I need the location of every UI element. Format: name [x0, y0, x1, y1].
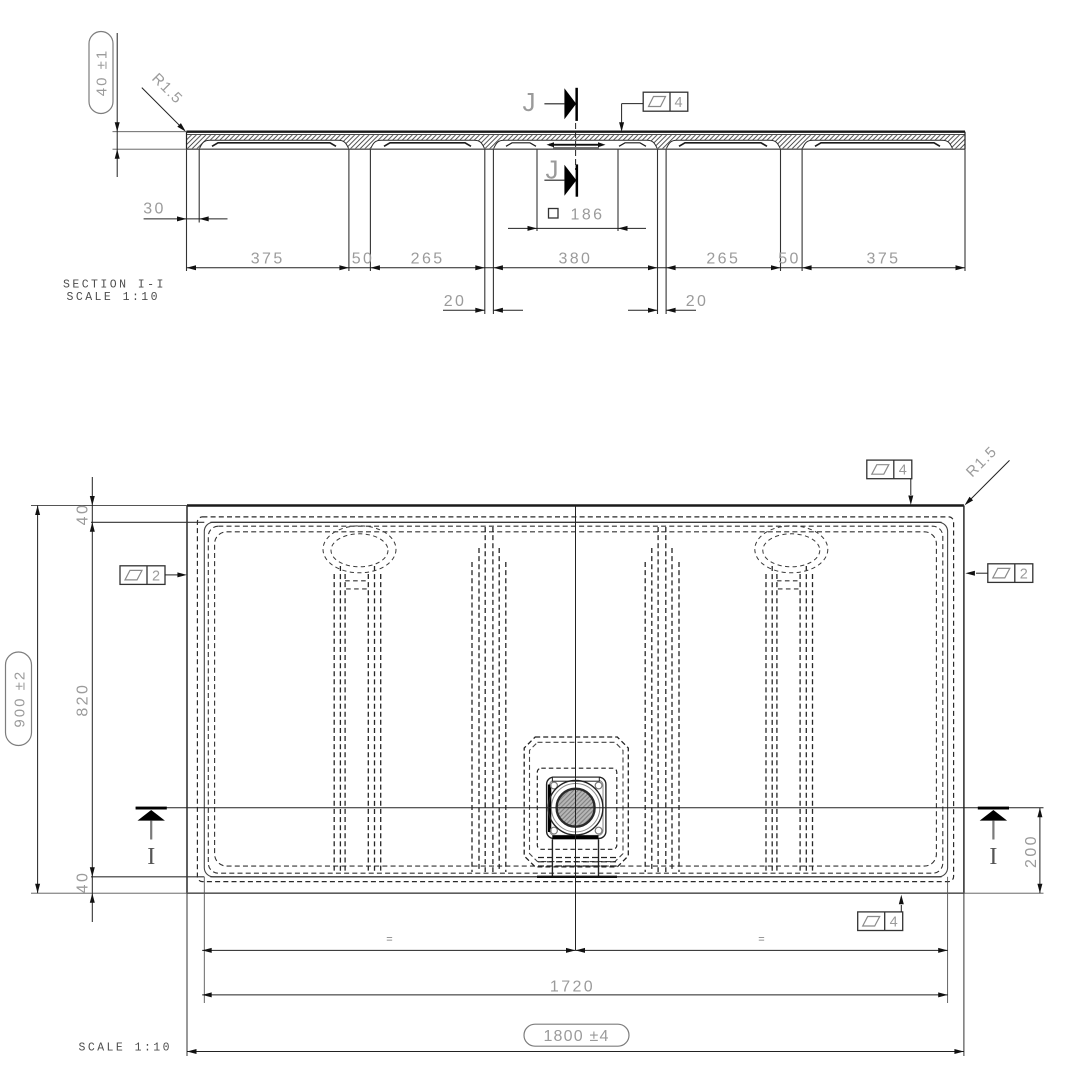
- svg-text:SECTION I-I: SECTION I-I: [63, 279, 166, 292]
- svg-text:2: 2: [152, 568, 160, 584]
- svg-text:265: 265: [706, 250, 740, 267]
- svg-text:900 ±2: 900 ±2: [11, 670, 28, 728]
- svg-text:20: 20: [444, 293, 467, 310]
- svg-text:375: 375: [867, 250, 901, 267]
- svg-text:=: =: [386, 934, 392, 946]
- svg-text:4: 4: [890, 915, 898, 931]
- svg-text:40: 40: [75, 503, 92, 526]
- svg-text:1720: 1720: [550, 979, 595, 996]
- svg-text:30: 30: [143, 201, 166, 218]
- svg-text:SCALE 1:10: SCALE 1:10: [79, 1042, 173, 1055]
- svg-text:50: 50: [778, 250, 801, 267]
- svg-text:I: I: [147, 844, 155, 870]
- svg-text:SCALE 1:10: SCALE 1:10: [67, 291, 161, 304]
- svg-text:4: 4: [674, 95, 682, 111]
- svg-text:20: 20: [686, 293, 709, 310]
- svg-text:1800 ±4: 1800 ±4: [543, 1028, 609, 1045]
- svg-text:40: 40: [75, 871, 92, 894]
- svg-text:820: 820: [75, 683, 92, 717]
- svg-text:I: I: [989, 844, 997, 870]
- svg-text:=: =: [758, 934, 764, 946]
- svg-text:4: 4: [899, 463, 907, 479]
- svg-text:200: 200: [1023, 834, 1040, 868]
- svg-text:J: J: [523, 87, 536, 117]
- svg-text:2: 2: [1020, 566, 1028, 582]
- svg-text:375: 375: [251, 250, 285, 267]
- svg-text:186: 186: [571, 206, 605, 223]
- svg-text:265: 265: [411, 250, 445, 267]
- svg-text:50: 50: [352, 250, 375, 267]
- svg-text:40 ±1: 40 ±1: [94, 49, 111, 96]
- svg-text:380: 380: [558, 250, 592, 267]
